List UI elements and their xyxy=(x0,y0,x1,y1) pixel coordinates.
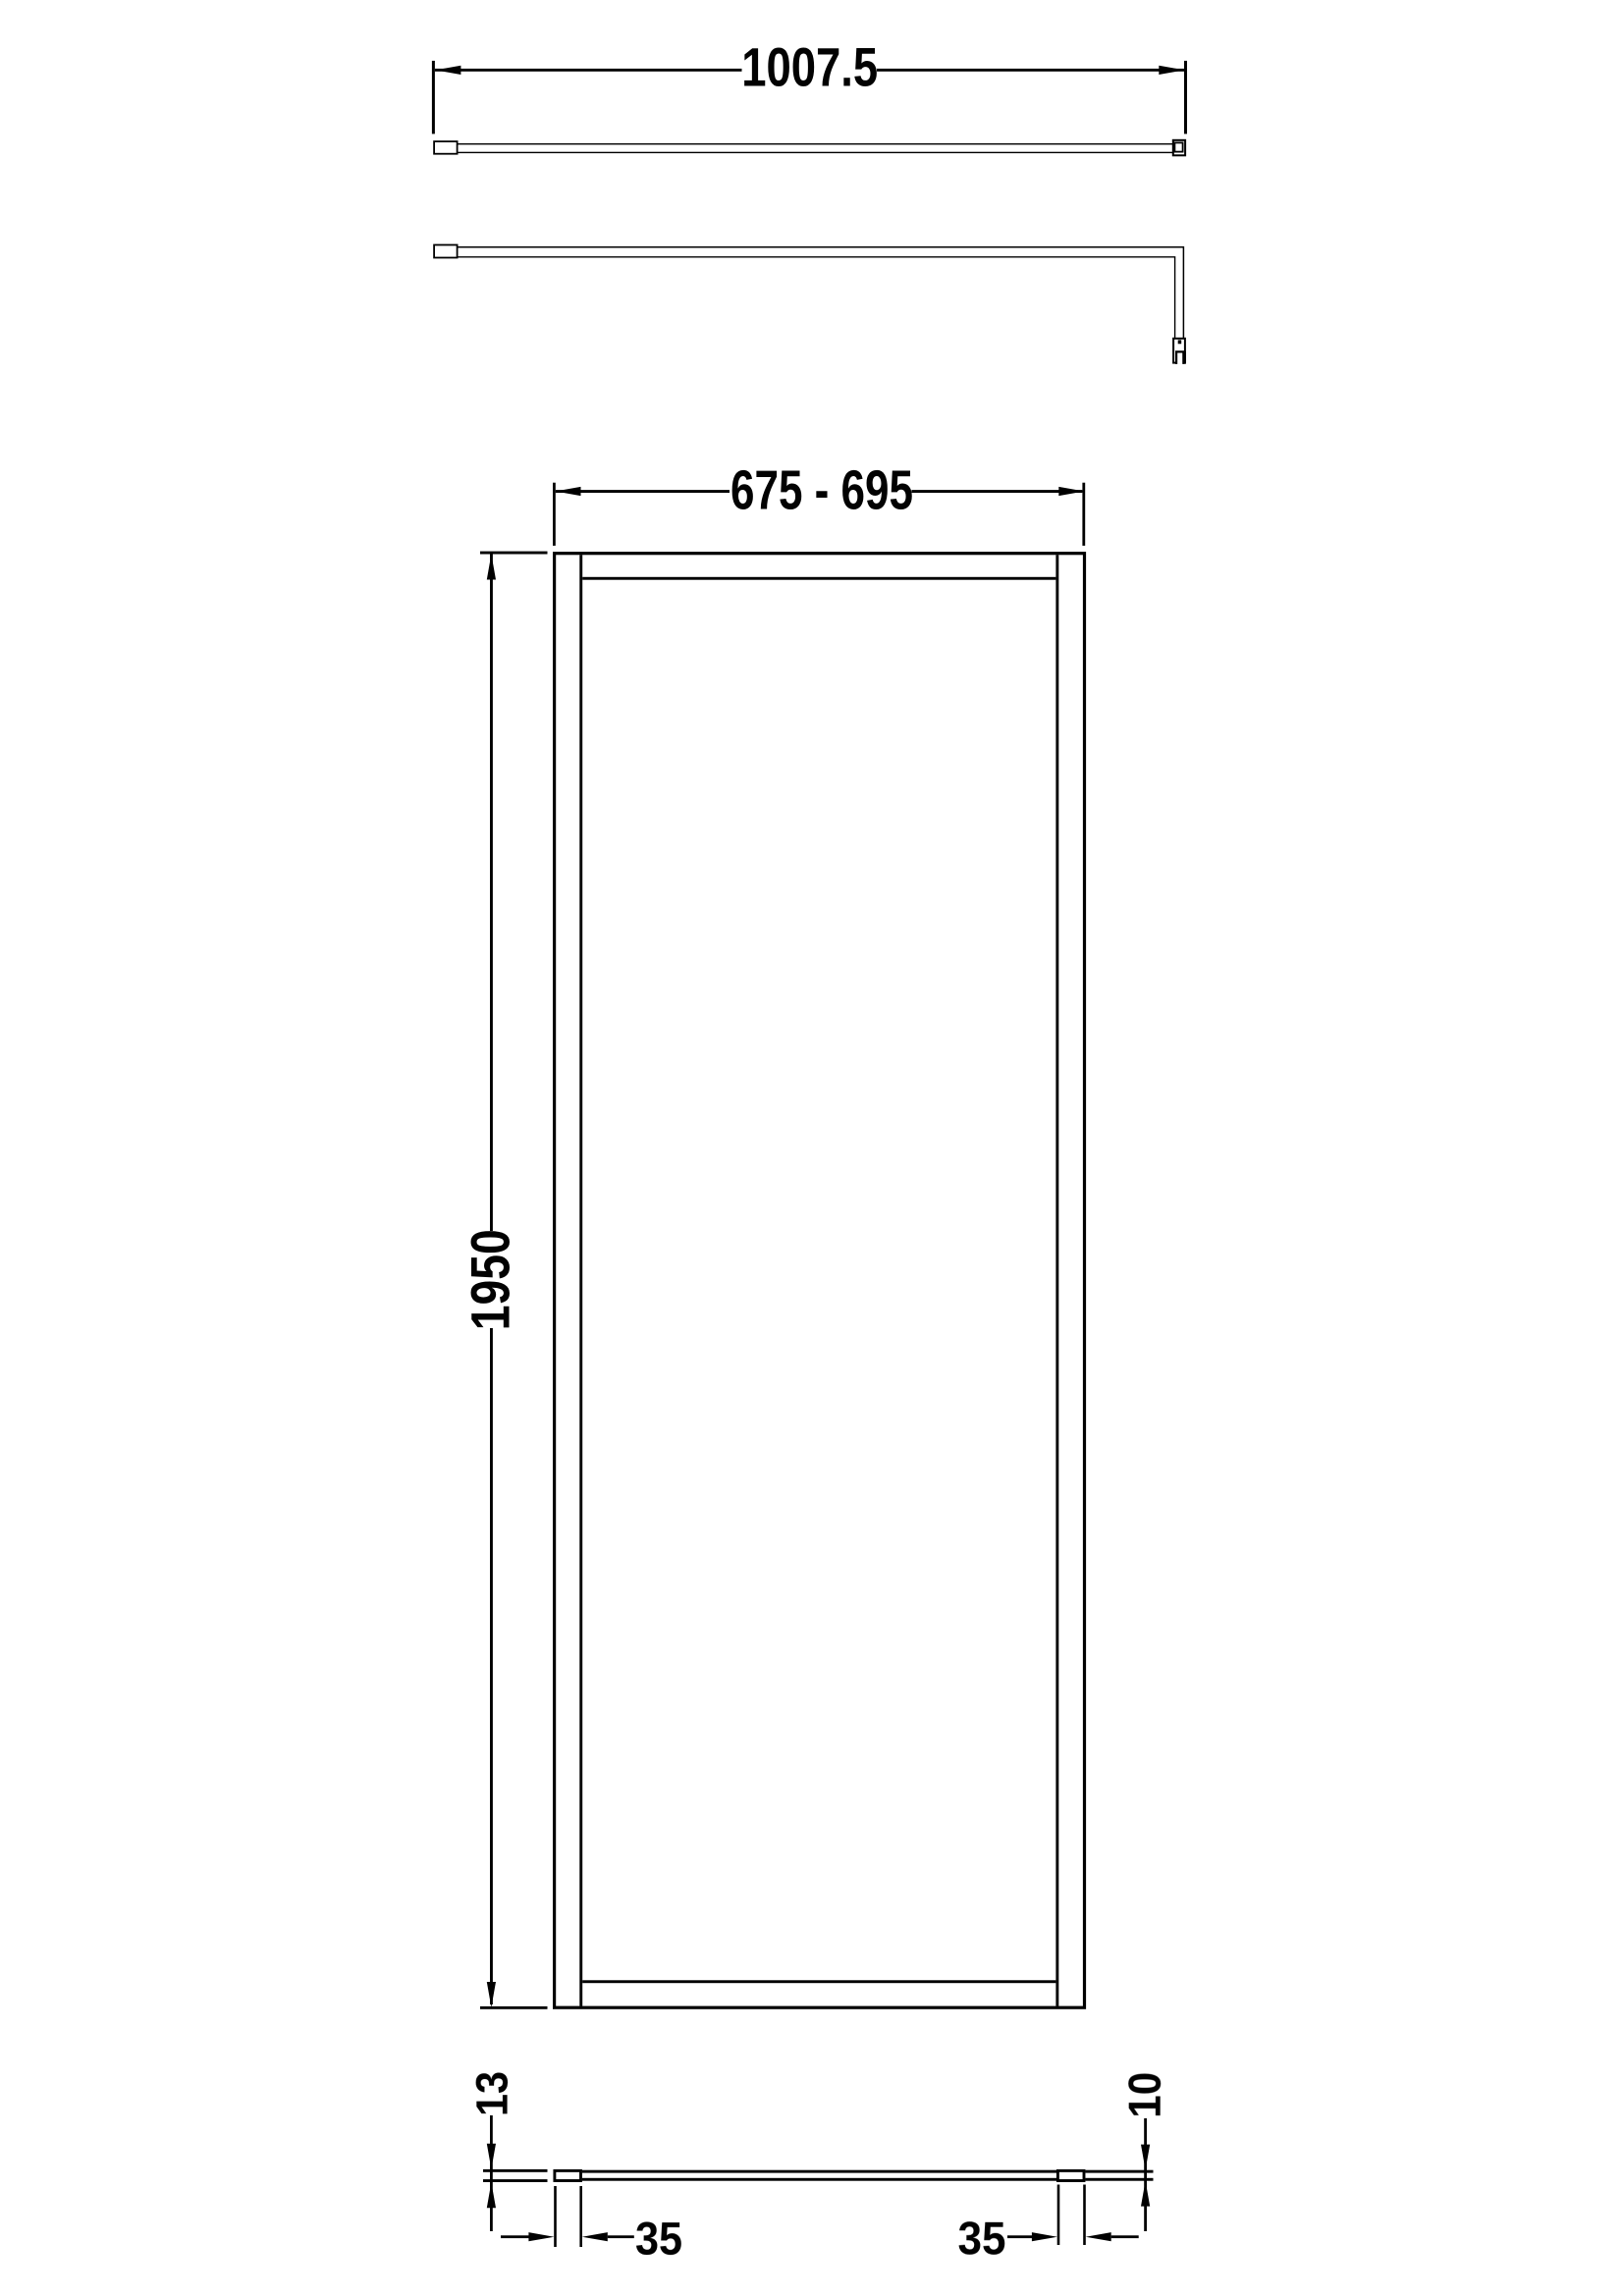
svg-text:675 - 695: 675 - 695 xyxy=(730,459,913,522)
svg-text:13: 13 xyxy=(467,2071,517,2116)
svg-text:1007.5: 1007.5 xyxy=(741,35,878,97)
svg-text:35: 35 xyxy=(957,2212,1005,2264)
svg-text:10: 10 xyxy=(1119,2072,1170,2118)
svg-text:1950: 1950 xyxy=(460,1229,521,1330)
svg-text:35: 35 xyxy=(635,2213,682,2265)
